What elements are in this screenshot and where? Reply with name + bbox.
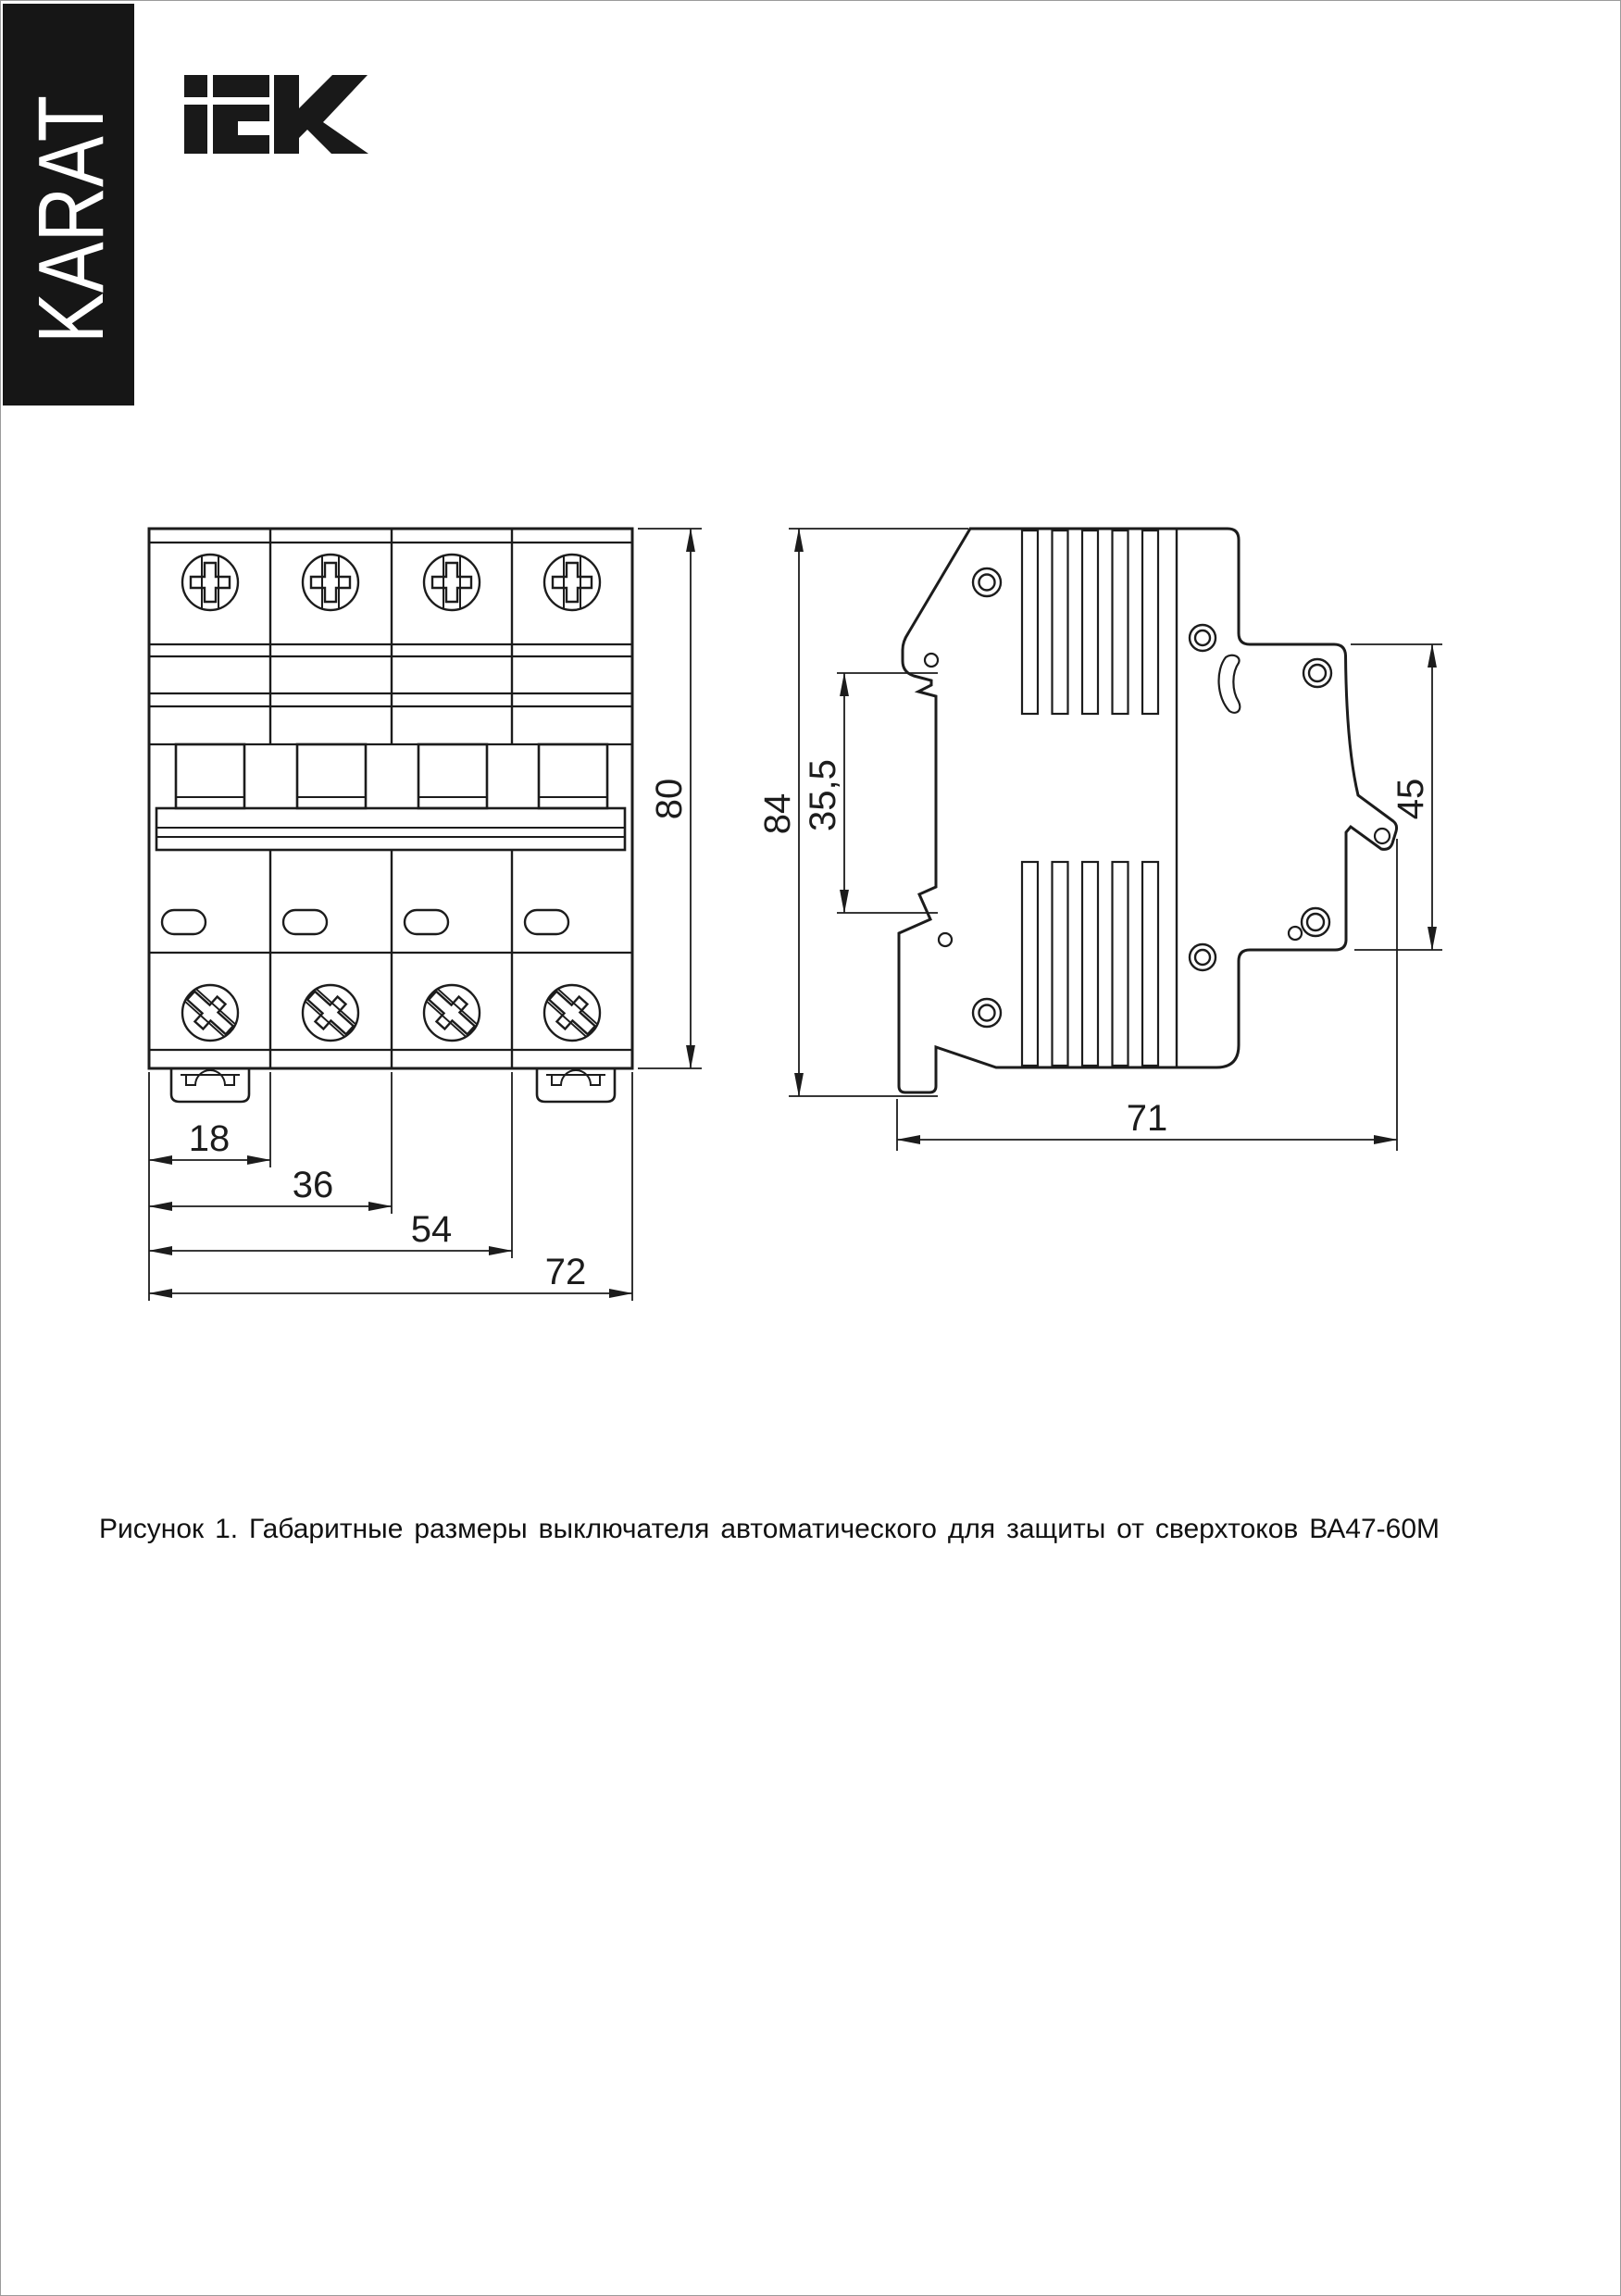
dim-label-18: 18 [189,1118,231,1159]
logo-i-dot [184,75,207,97]
din-rail-feet [171,1068,615,1102]
screw-bosses [973,568,1331,1027]
series-name-karat: KARAT [19,95,123,343]
logo-e-top-bar [213,75,269,97]
dim-label-80: 80 [649,779,690,820]
dim-label-72: 72 [545,1252,587,1292]
dim-front-widths: 18 36 54 72 [149,1072,632,1301]
curved-slot [1219,655,1241,713]
logo-k-stem [274,75,299,154]
dim-total-depth: 71 [897,839,1397,1151]
logo-i-stem [184,105,207,154]
figure-caption: Рисунок 1. Габаритные размеры выключател… [99,1510,1440,1549]
logo-e-block [213,105,269,154]
toggle-tie-bar [156,808,625,850]
logo-k-arms [299,75,368,154]
front-view [149,529,632,1102]
ventilation-slots [1022,530,1158,1066]
latch-hole [1375,829,1390,843]
dim-label-35-5: 35,5 [803,759,843,831]
document-page: KARAT [0,0,1621,2296]
dim-label-45: 45 [1390,779,1431,820]
side-view [899,529,1397,1092]
pole-dividers [270,529,512,1068]
dim-label-71: 71 [1127,1098,1168,1139]
toggle-handles [176,744,607,808]
marking-windows [162,910,568,934]
dim-front-height: 80 [638,529,702,1068]
dim-din-recess: 35,5 [803,673,938,913]
dim-label-54: 54 [411,1209,453,1250]
brand-banner: KARAT [3,4,134,406]
dim-label-84: 84 [757,793,798,835]
technical-drawing: KARAT [1,1,1621,2296]
iek-logo [184,75,368,154]
dim-label-36: 36 [293,1165,334,1205]
